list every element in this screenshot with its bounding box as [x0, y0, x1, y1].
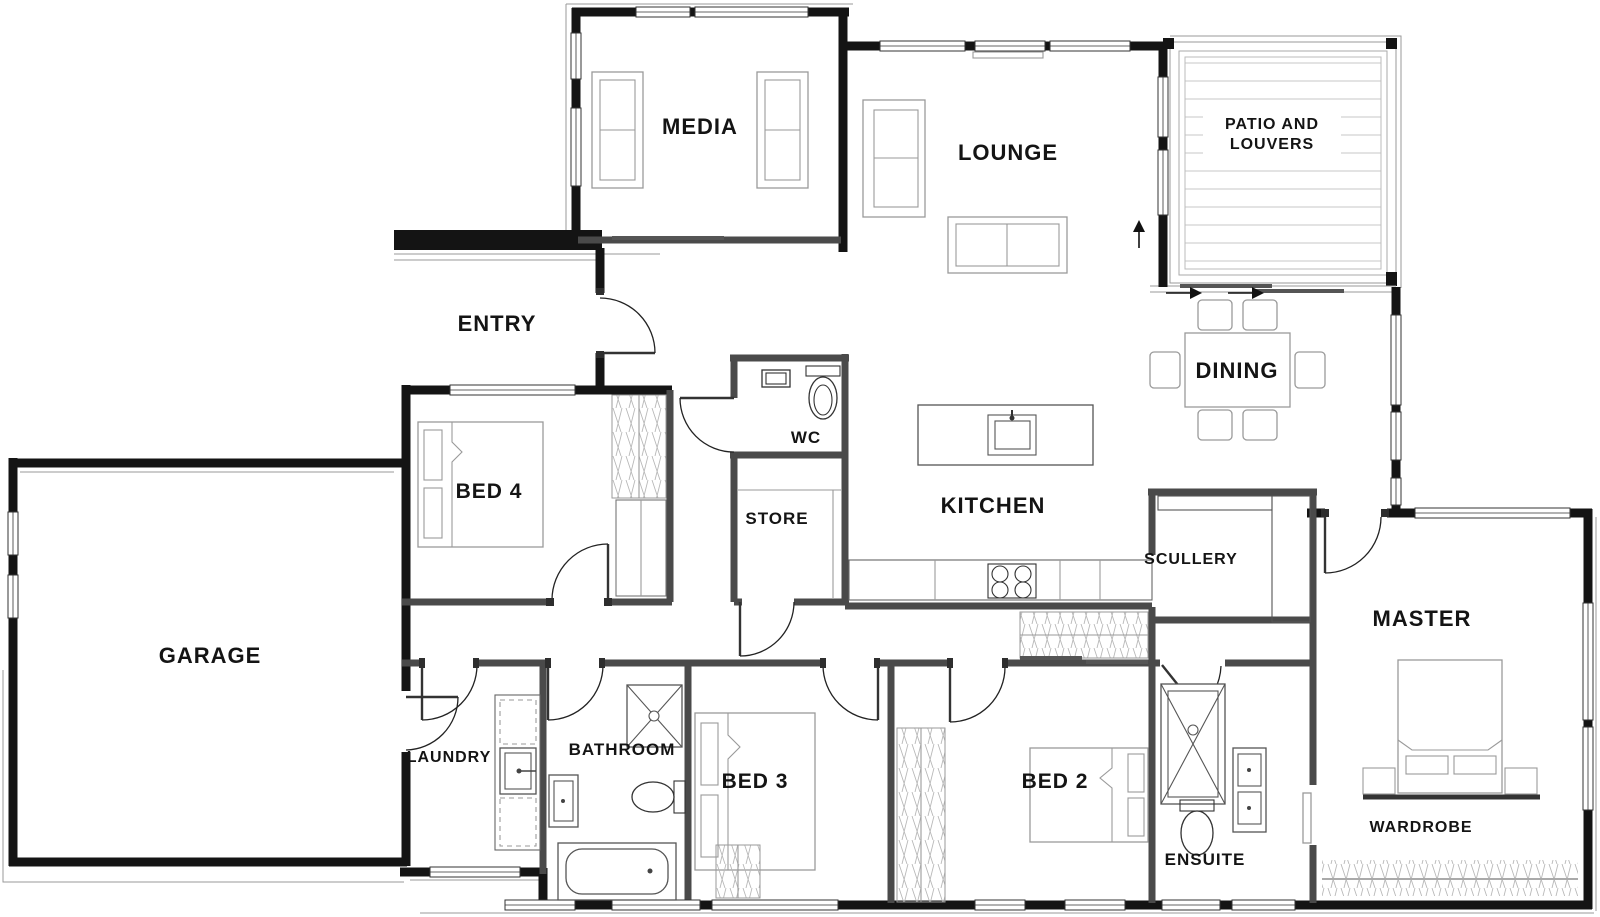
wc-toilet: [806, 366, 840, 419]
wc-basin: [762, 370, 790, 387]
bed4-door: [546, 544, 612, 606]
room-label-store: STORE: [745, 509, 808, 528]
room-label-bed4: BED 4: [456, 480, 523, 503]
room-label-bathroom: BATHROOM: [569, 740, 676, 759]
room-label-kitchen: KITCHEN: [941, 493, 1046, 518]
laundry-bench: [495, 695, 540, 850]
room-label-scullery: SCULLERY: [1144, 551, 1238, 568]
bathroom-shower: [627, 685, 682, 747]
room-label-bed3: BED 3: [722, 770, 789, 793]
bed3-door: [820, 658, 880, 720]
bed4-robe: [612, 395, 666, 498]
store-door: [740, 602, 794, 656]
kitchen-bench: [849, 560, 1152, 600]
store-shelves: [738, 490, 841, 598]
room-label-dining: DINING: [1196, 358, 1279, 383]
ensuite-shower: [1161, 684, 1225, 804]
room-label-wc: WC: [791, 428, 821, 447]
entry-door: [596, 288, 655, 358]
room-label-master: MASTER: [1373, 606, 1472, 631]
room-label-entry: ENTRY: [458, 311, 537, 336]
room-label-laundry: LAUNDRY: [407, 749, 492, 766]
room-label-patio-1: PATIO AND: [1225, 116, 1319, 133]
ensuite-toilet: [1180, 800, 1214, 855]
lounge-tv-unit: [973, 52, 1043, 58]
hall-linen-closet: [1020, 612, 1148, 664]
bed2-robe: [897, 728, 945, 902]
bed2-door: [947, 658, 1008, 722]
bath-tub: [558, 843, 676, 900]
room-label-patio-2: LOUVERS: [1230, 136, 1314, 153]
bathroom-toilet: [632, 781, 685, 813]
cooktop: [988, 564, 1036, 598]
bed2-bed: [1030, 748, 1148, 842]
ensuite-vanity: [1233, 748, 1266, 832]
master-door: [1321, 509, 1389, 573]
room-label-media: MEDIA: [662, 114, 738, 139]
wardrobe-door: [1303, 793, 1311, 843]
bathroom-door: [545, 658, 605, 720]
master-bed: [1363, 660, 1537, 794]
wardrobe-rail: [1322, 860, 1578, 896]
bathroom-vanity: [549, 775, 578, 827]
laundry-door: [419, 658, 479, 720]
room-label-bed2: BED 2: [1022, 770, 1089, 793]
furniture: [418, 52, 1578, 902]
arrow-up-icon: [1133, 220, 1145, 248]
room-label-lounge: LOUNGE: [958, 140, 1058, 165]
floor-plan-drawing: MEDIA LOUNGE PATIO AND LOUVERS ENTRY WC …: [0, 0, 1600, 917]
bed3-robe: [716, 845, 760, 898]
media-sofa-right: [757, 72, 808, 188]
patio-louvers-area: [1150, 38, 1397, 293]
hall-closet: [616, 500, 666, 596]
lounge-sofa: [863, 100, 925, 217]
arrow-right-icon: [1228, 287, 1264, 299]
garage-laundry-door: [406, 697, 458, 750]
room-label-ensuite: ENSUITE: [1165, 850, 1246, 869]
room-label-garage: GARAGE: [159, 643, 262, 668]
floor-plan-page: MEDIA LOUNGE PATIO AND LOUVERS ENTRY WC …: [0, 0, 1600, 917]
lounge-coffee-table: [948, 217, 1067, 273]
kitchen-island: [918, 405, 1093, 465]
wc-door: [680, 398, 734, 452]
media-sofa-left: [592, 72, 643, 188]
room-label-wardrobe: WARDROBE: [1369, 819, 1472, 836]
arrow-right-icon: [1166, 287, 1202, 299]
